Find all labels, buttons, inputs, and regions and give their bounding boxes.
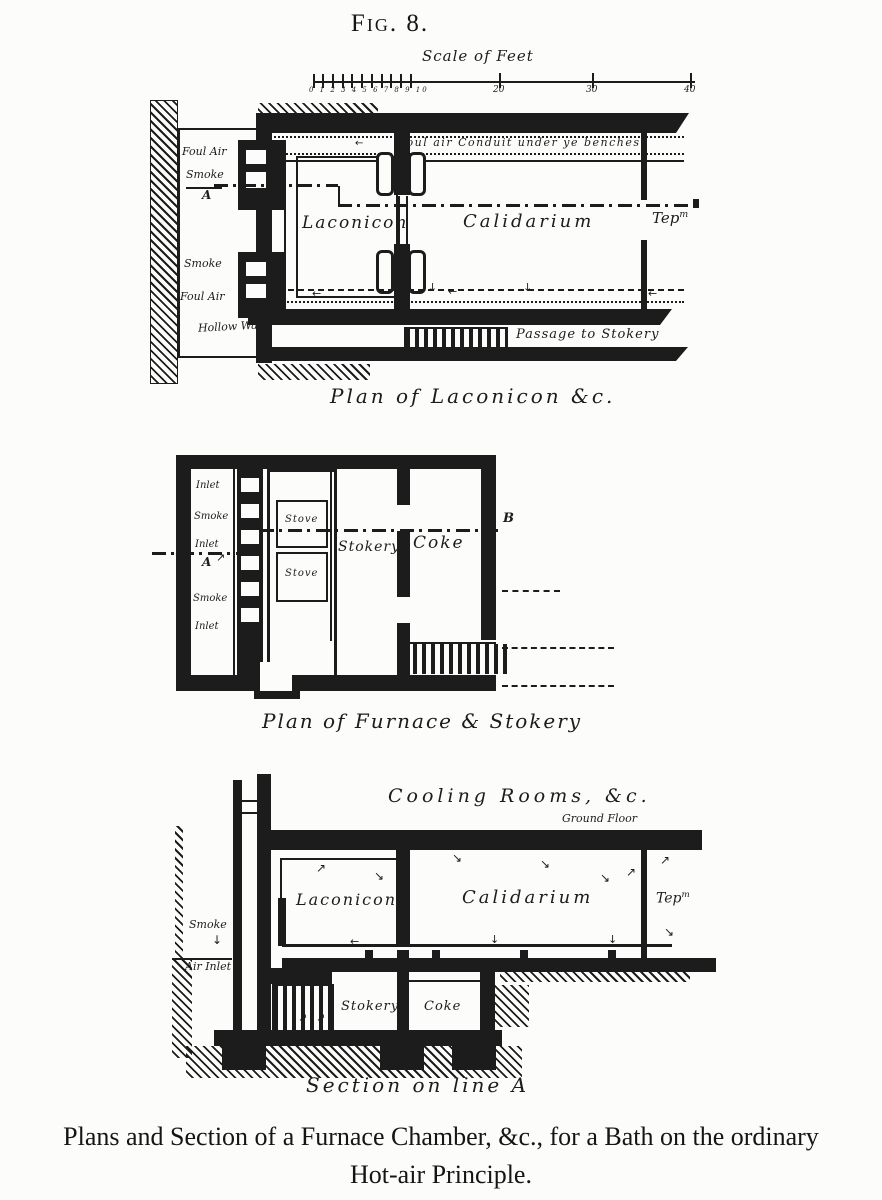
outer-wall	[176, 455, 191, 691]
stair-steps	[404, 644, 508, 674]
cooling-rooms-label: Cooling Rooms, &c.	[388, 786, 651, 807]
tepidarium-abbr: Tep	[656, 891, 682, 907]
party-wall-hatch	[150, 100, 178, 384]
passage-label: Passage to Stokery	[516, 328, 659, 342]
flow-arrow-icon: ←	[448, 286, 457, 297]
flow-arrow-icon: ↗	[316, 862, 326, 874]
flow-arrow-icon: ←	[355, 139, 363, 149]
wall-step-notch	[260, 662, 292, 691]
flow-arrow-icon: ↘	[452, 852, 462, 864]
flue-register	[241, 530, 259, 544]
flow-arrow-icon: ↓	[428, 282, 437, 293]
figure-title: Fig. 8.	[300, 10, 480, 38]
continuation-dashes	[502, 647, 614, 649]
doorway-gap	[397, 505, 410, 531]
flow-arrow-icon: ↘	[664, 926, 674, 938]
section-line-jog	[338, 186, 340, 206]
inlet-label: Inlet	[195, 539, 219, 550]
flow-arrow-icon: ↗	[316, 1012, 325, 1023]
flow-arrow-icon: ↓	[608, 934, 617, 945]
scale-minor-numbers: 0 1 2 3 4 5 6 7 8 9 10	[309, 87, 429, 95]
tepidarium-room-label: Tepm	[656, 891, 690, 907]
earth-hatch	[500, 972, 690, 982]
smoke-label: Smoke	[193, 593, 227, 604]
inlet-label: Inlet	[196, 480, 220, 491]
partition-wall	[396, 850, 410, 946]
room-ceiling-line	[280, 858, 396, 860]
outer-wall	[258, 347, 676, 361]
section-marker-a: A	[202, 189, 211, 202]
flue-channel	[246, 262, 266, 276]
flow-arrow-icon: ↓	[523, 282, 532, 293]
flow-arrow-icon: ↘	[374, 870, 384, 882]
section-line-b	[260, 529, 500, 532]
partition-wall	[397, 950, 409, 1032]
flow-arrow-icon: ←	[648, 288, 657, 299]
foul-air-label: Foul Air	[182, 146, 226, 158]
figure-caption-line2: Hot-air Principle.	[0, 1160, 882, 1190]
flue-channel	[246, 284, 266, 298]
door-jamb	[376, 152, 394, 196]
outer-wall	[176, 455, 496, 469]
ground-floor-slab	[268, 830, 702, 850]
sub-floor-band	[282, 958, 716, 972]
smoke-label: Smoke	[189, 919, 227, 931]
outer-wall	[481, 455, 496, 640]
flow-arrow-icon: ↘	[540, 858, 550, 870]
basement-wall	[480, 968, 495, 1032]
conduit-line	[270, 153, 684, 155]
chimney-wall	[257, 774, 271, 1032]
door-jamb	[408, 152, 426, 196]
footing-block	[222, 1046, 266, 1070]
stokery-room-label: Stokery	[338, 540, 400, 555]
conduit-line	[268, 289, 684, 291]
section-line-a	[338, 204, 690, 207]
stove-label: Stove	[285, 568, 318, 579]
flue-register	[241, 478, 259, 492]
flow-arrow-icon: ↗	[298, 1012, 307, 1023]
furnace-arch	[262, 968, 332, 984]
foundation-band	[214, 1030, 502, 1046]
flue-wall	[237, 469, 263, 675]
wall-step	[254, 691, 300, 699]
section-line-b	[152, 552, 260, 555]
flow-arrow-icon: ↘	[600, 872, 610, 884]
chimney-rung	[242, 812, 257, 814]
plan-laconicon-caption: Plan of Laconicon &c.	[330, 385, 615, 407]
scale-label: Scale of Feet	[422, 48, 534, 65]
section-marker-b: B	[503, 512, 514, 526]
flow-arrow-icon: ↗	[660, 854, 670, 866]
wall-hatch-marks	[258, 364, 370, 380]
wall-hatch-marks	[175, 826, 183, 958]
scale-number-30: 30	[586, 86, 597, 96]
laconicon-room-label: Laconicon	[296, 891, 397, 909]
wall-taper	[676, 347, 688, 361]
bench-step	[278, 898, 286, 946]
wall-taper	[676, 113, 689, 133]
section-line-jog	[260, 531, 262, 553]
figure-caption-line1: Plans and Section of a Furnace Chamber, …	[0, 1122, 882, 1152]
smoke-label: Smoke	[194, 511, 228, 522]
room-wall-line	[332, 984, 334, 1032]
conduit-note: Foul air Conduit under ye benches	[398, 137, 641, 149]
south-wall	[248, 309, 660, 325]
conduit-line	[268, 301, 684, 303]
flue-register	[241, 504, 259, 518]
tepidarium-sup: m	[682, 890, 690, 900]
furnace-grate	[272, 984, 332, 1032]
section-line-end-mark	[693, 199, 699, 208]
flue-register	[241, 608, 259, 622]
flow-arrow-icon: ↓	[212, 934, 222, 946]
smoke-label: Smoke	[184, 258, 222, 270]
stove-label: Stove	[285, 514, 318, 525]
tepidarium-room-label: Tepm	[652, 210, 688, 227]
flow-arrow-icon: ↓	[490, 934, 499, 945]
flue-register	[241, 556, 259, 570]
north-wall	[256, 113, 676, 133]
scanned-figure-page: Fig. 8. Scale of Feet 0 1 2 3 4 5 6 7 8 …	[0, 0, 882, 1200]
laconicon-room-label: Laconicon	[302, 214, 408, 233]
inner-wall-line	[330, 469, 332, 641]
inlet-label: Inlet	[195, 621, 219, 632]
flow-arrow-icon: ←	[312, 288, 321, 299]
coke-room-label: Coke	[424, 1000, 461, 1014]
flow-arrow-icon: ↗	[626, 866, 636, 878]
wall-taper	[660, 309, 672, 325]
air-inlet-label: Air Inlet	[185, 961, 231, 973]
flue-channel	[246, 150, 266, 164]
smoke-label: Smoke	[186, 169, 224, 181]
footing-block	[380, 1046, 424, 1070]
tepidarium-abbr: Tep	[652, 209, 679, 227]
continuation-dashes	[502, 590, 560, 592]
foul-air-label: Foul Air	[180, 291, 224, 303]
coke-room-label: Coke	[413, 534, 465, 553]
inner-wall-line	[233, 469, 235, 675]
door-jamb	[408, 250, 426, 294]
doorway-gap	[397, 597, 410, 623]
section-line-a	[214, 184, 338, 187]
chimney-rung	[242, 800, 257, 802]
stokery-room-label: Stokery	[341, 1000, 399, 1014]
section-caption: Section on line A	[306, 1074, 529, 1096]
footing-block	[452, 1046, 496, 1070]
scale-number-20: 20	[493, 86, 504, 96]
continuation-dashes	[502, 685, 614, 687]
tepidarium-sup: m	[679, 209, 688, 220]
ground-floor-label: Ground Floor	[562, 813, 637, 825]
calidarium-room-label: Calidarium	[462, 888, 593, 908]
earth-hatch	[495, 985, 529, 1027]
section-marker-a: A	[202, 556, 211, 569]
plan-furnace-caption: Plan of Furnace & Stokery	[262, 710, 582, 732]
flue-register	[241, 582, 259, 596]
room-ceiling-line	[409, 980, 480, 982]
tepidarium-wall	[641, 130, 647, 200]
flow-arrow-icon: ←	[350, 936, 359, 947]
chimney-wall	[233, 780, 242, 1032]
scale-number-40: 40	[684, 86, 695, 96]
calidarium-room-label: Calidarium	[463, 212, 594, 232]
door-jamb	[376, 250, 394, 294]
